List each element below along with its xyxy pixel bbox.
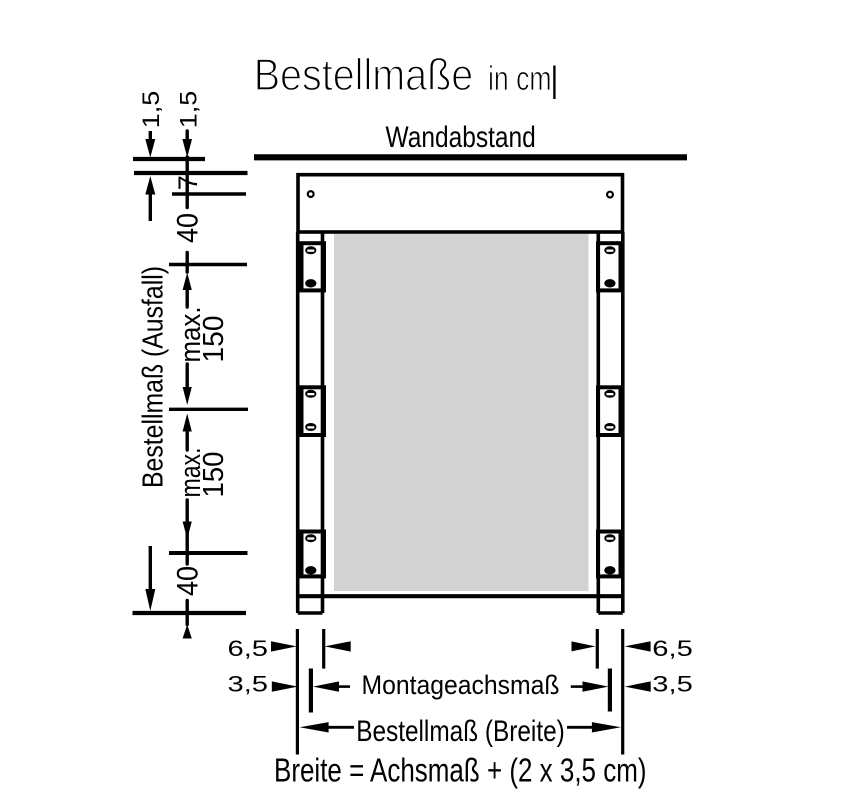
svg-text:40: 40: [172, 213, 205, 243]
svg-text:Bestellmaß (Breite): Bestellmaß (Breite): [356, 715, 565, 748]
svg-text:1,5: 1,5: [175, 91, 202, 129]
svg-text:6,5: 6,5: [652, 636, 693, 661]
svg-text:7: 7: [173, 175, 203, 190]
svg-text:3,5: 3,5: [652, 672, 693, 697]
svg-text:1,5: 1,5: [138, 91, 165, 129]
svg-text:Montageachsmaß: Montageachsmaß: [362, 670, 560, 700]
svg-text:Bestellmaße: Bestellmaße: [254, 51, 474, 100]
svg-text:150: 150: [198, 452, 230, 498]
svg-text:Breite = Achsmaß + (2 x 3,5 cm: Breite = Achsmaß + (2 x 3,5 cm): [274, 753, 647, 790]
svg-text:Wandabstand: Wandabstand: [386, 121, 536, 154]
svg-text:40: 40: [172, 566, 205, 596]
svg-text:Bestellmaß (Ausfall): Bestellmaß (Ausfall): [137, 266, 169, 488]
svg-text:6,5: 6,5: [228, 636, 269, 661]
svg-text:150: 150: [198, 316, 230, 363]
svg-text:in cm: in cm: [488, 60, 552, 98]
svg-text:3,5: 3,5: [228, 672, 269, 697]
